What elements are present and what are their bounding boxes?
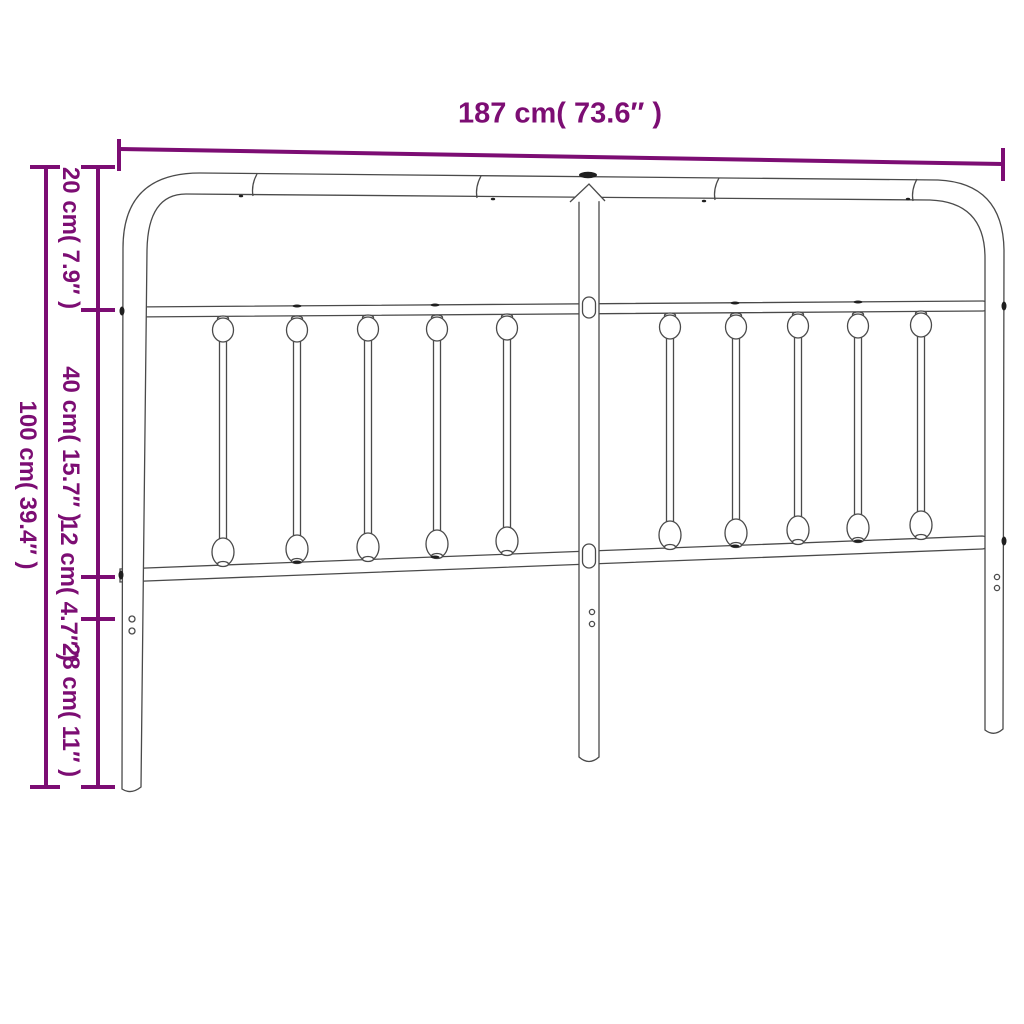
diagram-canvas: 187 cm( 73.6″ ) 100 cm( 39.4″ ) 20 cm( 7… bbox=[0, 0, 1024, 1024]
spindle-part bbox=[793, 540, 804, 545]
bolt-mark bbox=[119, 571, 124, 580]
spindle-part bbox=[218, 562, 229, 567]
dimension-label-width: 187 cm( 73.6″ ) bbox=[458, 98, 662, 131]
spindle-part bbox=[497, 316, 518, 340]
spindle-part bbox=[365, 339, 372, 534]
spindle-part bbox=[220, 340, 227, 539]
dimension-label-segment-20: 20 cm( 7.9″ ) bbox=[56, 167, 84, 309]
spindle-part bbox=[504, 338, 511, 528]
joint-mark bbox=[579, 172, 597, 178]
spindle-part bbox=[733, 337, 740, 520]
screw-dash bbox=[854, 540, 863, 543]
bolt-mark bbox=[1002, 302, 1007, 311]
spindle-part bbox=[502, 551, 513, 556]
screw-dash bbox=[731, 545, 740, 548]
bolt-mark bbox=[120, 307, 125, 316]
dimension-label-segment-12: 12 cm( 4.7″ ) bbox=[54, 519, 82, 661]
spindle-part bbox=[667, 337, 674, 522]
post-capsule-lower bbox=[583, 544, 596, 568]
screw-dash bbox=[293, 305, 302, 308]
spindle-part bbox=[660, 315, 681, 339]
fastener-marks-group bbox=[119, 172, 1007, 580]
spindle-part bbox=[918, 335, 925, 512]
spindle-part bbox=[427, 317, 448, 341]
bolt-mark bbox=[1002, 537, 1007, 546]
spindle-part bbox=[665, 545, 676, 550]
screw-dash bbox=[431, 304, 440, 307]
mount-hole bbox=[589, 621, 594, 626]
spindle-part bbox=[848, 314, 869, 338]
spindle-part bbox=[726, 315, 747, 339]
spindle-part bbox=[363, 557, 374, 562]
dimension-label-total-height: 100 cm( 39.4″ ) bbox=[13, 401, 41, 570]
screw-dash bbox=[854, 301, 863, 304]
mount-hole bbox=[129, 616, 135, 622]
spindle-part bbox=[287, 318, 308, 342]
headboard-drawing bbox=[0, 0, 1024, 1024]
spindle-part bbox=[358, 317, 379, 341]
mount-hole bbox=[994, 585, 999, 590]
spindle-part bbox=[213, 318, 234, 342]
frame-tube bbox=[122, 173, 1004, 792]
mount-hole bbox=[994, 574, 999, 579]
post-capsule-upper bbox=[583, 297, 596, 318]
screw-dot bbox=[491, 198, 495, 201]
screw-dash bbox=[431, 556, 440, 559]
headboard-frame-group bbox=[120, 173, 1004, 792]
spindle-part bbox=[855, 336, 862, 515]
screw-dash bbox=[731, 302, 740, 305]
mount-hole bbox=[589, 609, 594, 614]
spindle-part bbox=[434, 339, 441, 531]
dimension-label-segment-28: 28 cm( 11″ ) bbox=[56, 643, 84, 777]
screw-dot bbox=[702, 200, 706, 203]
mount-hole bbox=[129, 628, 135, 634]
width-dimension-line bbox=[119, 149, 1003, 164]
screw-dot bbox=[906, 198, 910, 201]
screw-dot bbox=[239, 195, 243, 198]
spindle-part bbox=[911, 313, 932, 337]
dimension-label-segment-40: 40 cm( 15.7″ ) bbox=[56, 366, 84, 522]
spindle-part bbox=[795, 336, 802, 517]
spindle-part bbox=[294, 340, 301, 536]
spindle-part bbox=[788, 314, 809, 338]
center-post bbox=[579, 195, 599, 762]
screw-dash bbox=[293, 561, 302, 564]
spindles-group bbox=[212, 311, 932, 567]
spindle-part bbox=[916, 535, 927, 540]
